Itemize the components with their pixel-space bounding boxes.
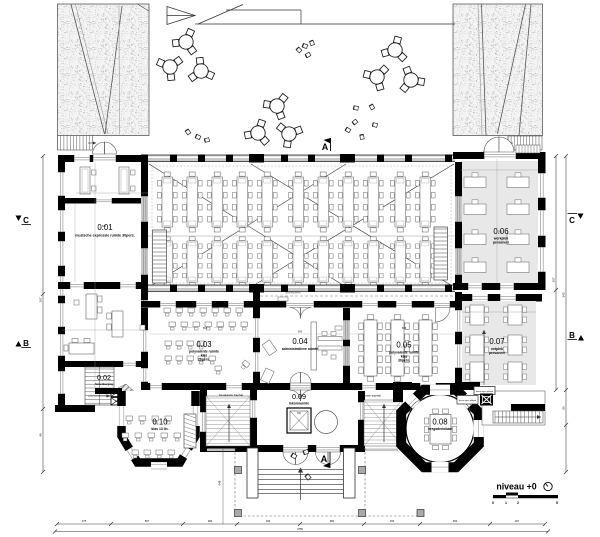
svg-text:administratieve ruimte: administratieve ruimte xyxy=(282,347,318,351)
svg-text:648: 648 xyxy=(218,480,222,485)
svg-text:360: 360 xyxy=(208,519,213,523)
svg-text:vergaderlokaal: vergaderlokaal xyxy=(428,427,452,431)
svg-text:nieuwe traphal: nieuwe traphal xyxy=(361,394,381,398)
svg-text:C: C xyxy=(23,216,29,225)
svg-text:0.05: 0.05 xyxy=(396,341,412,350)
svg-text:inkomruimte: inkomruimte xyxy=(289,402,309,406)
svg-text:595: 595 xyxy=(298,330,303,334)
svg-text:343: 343 xyxy=(562,292,566,297)
svg-text:2: 2 xyxy=(517,501,519,505)
svg-text:glas in lood: glas in lood xyxy=(143,226,147,242)
svg-text:A: A xyxy=(322,142,329,152)
svg-text:175: 175 xyxy=(82,519,87,523)
svg-text:167: 167 xyxy=(552,277,556,282)
svg-text:A: A xyxy=(321,454,328,464)
svg-text:bureel eigen plafond: bureel eigen plafond xyxy=(476,390,493,393)
svg-text:1: 1 xyxy=(505,501,507,505)
svg-text:507: 507 xyxy=(145,519,150,523)
svg-text:167: 167 xyxy=(39,297,43,302)
svg-text:360: 360 xyxy=(453,519,458,523)
svg-text:C: C xyxy=(569,216,575,225)
svg-text:5: 5 xyxy=(556,501,558,505)
svg-text:49: 49 xyxy=(39,433,43,437)
svg-text:B: B xyxy=(569,331,575,340)
svg-text:0.09: 0.09 xyxy=(292,392,306,401)
svg-text:0.08: 0.08 xyxy=(432,418,447,427)
svg-text:56: 56 xyxy=(562,406,566,410)
svg-text:muzische expressie ruimte 30pe: muzische expressie ruimte 30pers. xyxy=(75,234,135,238)
svg-text:0.03: 0.03 xyxy=(196,340,211,349)
svg-text:B: B xyxy=(23,339,29,348)
svg-text:0.10: 0.10 xyxy=(152,418,168,427)
svg-text:26pers.: 26pers. xyxy=(198,358,210,362)
svg-text:bureel eigen plafond: bureel eigen plafond xyxy=(459,399,476,402)
svg-text:bestaande traphal: bestaande traphal xyxy=(219,393,243,397)
svg-text:868: 868 xyxy=(203,326,208,330)
svg-text:fietsenberging: fietsenberging xyxy=(95,382,113,386)
svg-text:personeel: personeel xyxy=(489,351,505,355)
svg-text:307: 307 xyxy=(515,519,520,523)
svg-text:0: 0 xyxy=(492,501,494,505)
svg-text:0.04: 0.04 xyxy=(292,337,308,346)
svg-text:160: 160 xyxy=(390,519,395,523)
svg-text:3759: 3759 xyxy=(297,527,303,531)
svg-text:zonnescherm: zonnescherm xyxy=(285,291,301,295)
svg-text:niveau +0: niveau +0 xyxy=(496,482,536,492)
svg-text:personeel: personeel xyxy=(493,241,509,245)
svg-text:160: 160 xyxy=(266,519,271,523)
svg-text:30pers.: 30pers. xyxy=(398,359,410,363)
svg-text:595: 595 xyxy=(297,412,302,415)
svg-text:868: 868 xyxy=(102,225,107,228)
svg-text:klas 13 lln.: klas 13 lln. xyxy=(151,427,168,431)
svg-text:868: 868 xyxy=(402,326,407,330)
svg-text:595: 595 xyxy=(498,231,503,234)
svg-text:0.02: 0.02 xyxy=(97,373,111,382)
svg-text:0.07: 0.07 xyxy=(489,337,504,346)
svg-text:950: 950 xyxy=(330,519,335,523)
